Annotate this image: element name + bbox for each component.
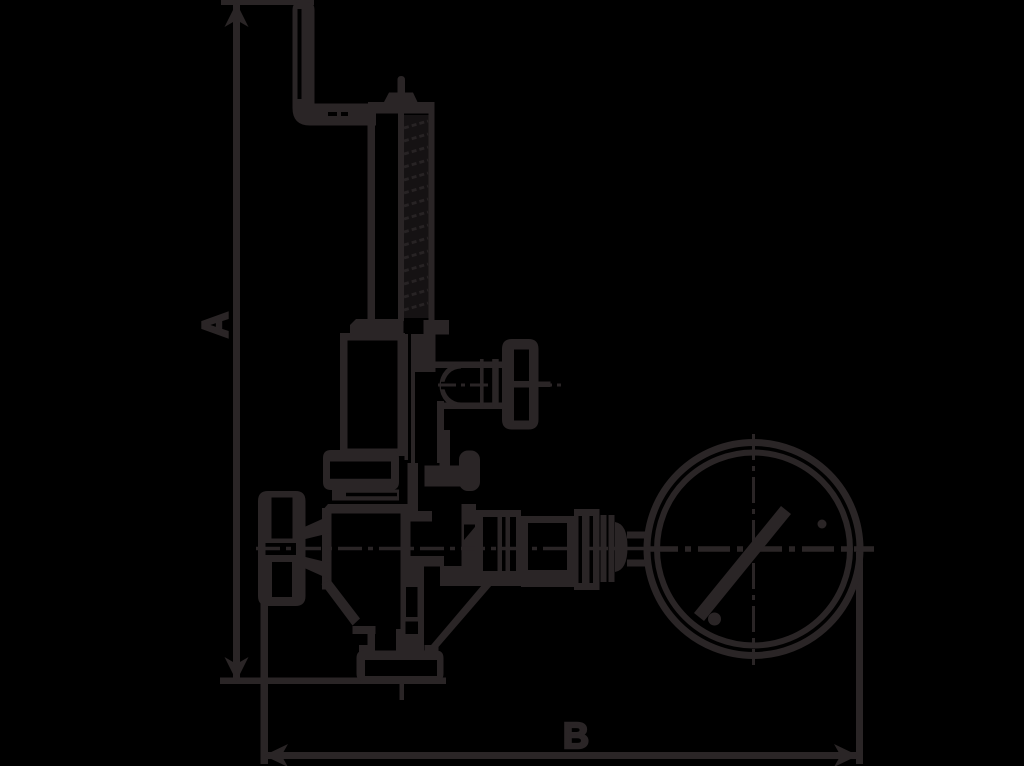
svg-text:B: B <box>563 715 589 756</box>
svg-text:A: A <box>195 312 236 338</box>
